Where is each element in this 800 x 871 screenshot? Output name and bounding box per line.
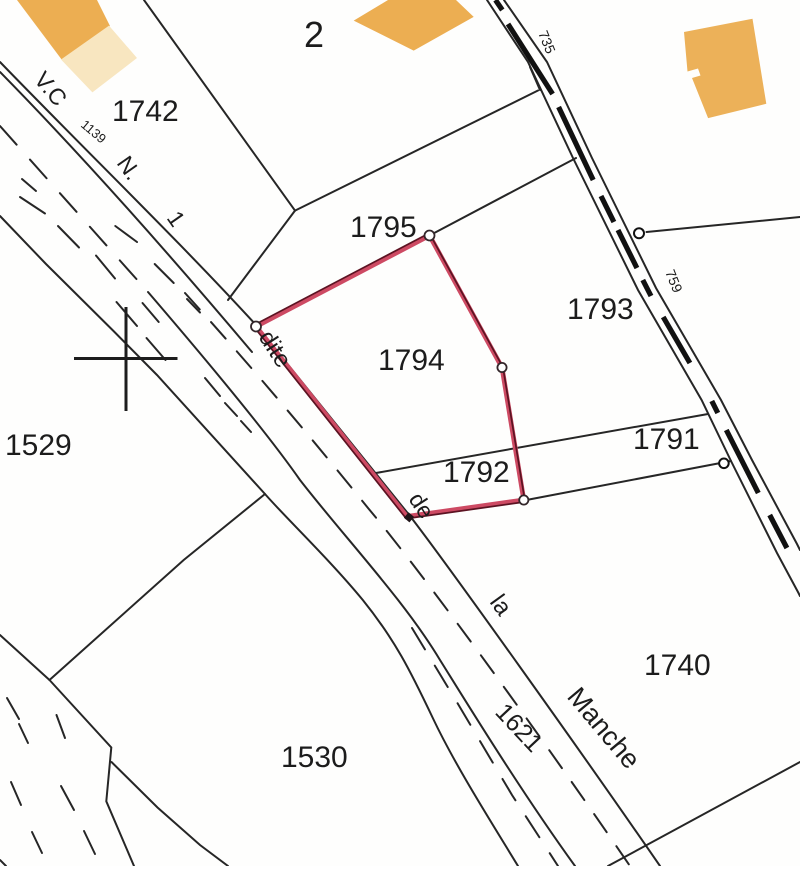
- svg-text:1530: 1530: [281, 741, 348, 774]
- svg-text:1794: 1794: [378, 344, 445, 377]
- svg-text:1740: 1740: [644, 649, 711, 682]
- svg-text:1792: 1792: [443, 456, 510, 489]
- svg-text:1793: 1793: [567, 293, 634, 326]
- svg-text:1795: 1795: [350, 211, 417, 244]
- svg-text:2: 2: [304, 14, 324, 55]
- svg-text:1529: 1529: [5, 429, 72, 462]
- svg-text:1742: 1742: [112, 95, 179, 128]
- svg-text:1791: 1791: [633, 423, 700, 456]
